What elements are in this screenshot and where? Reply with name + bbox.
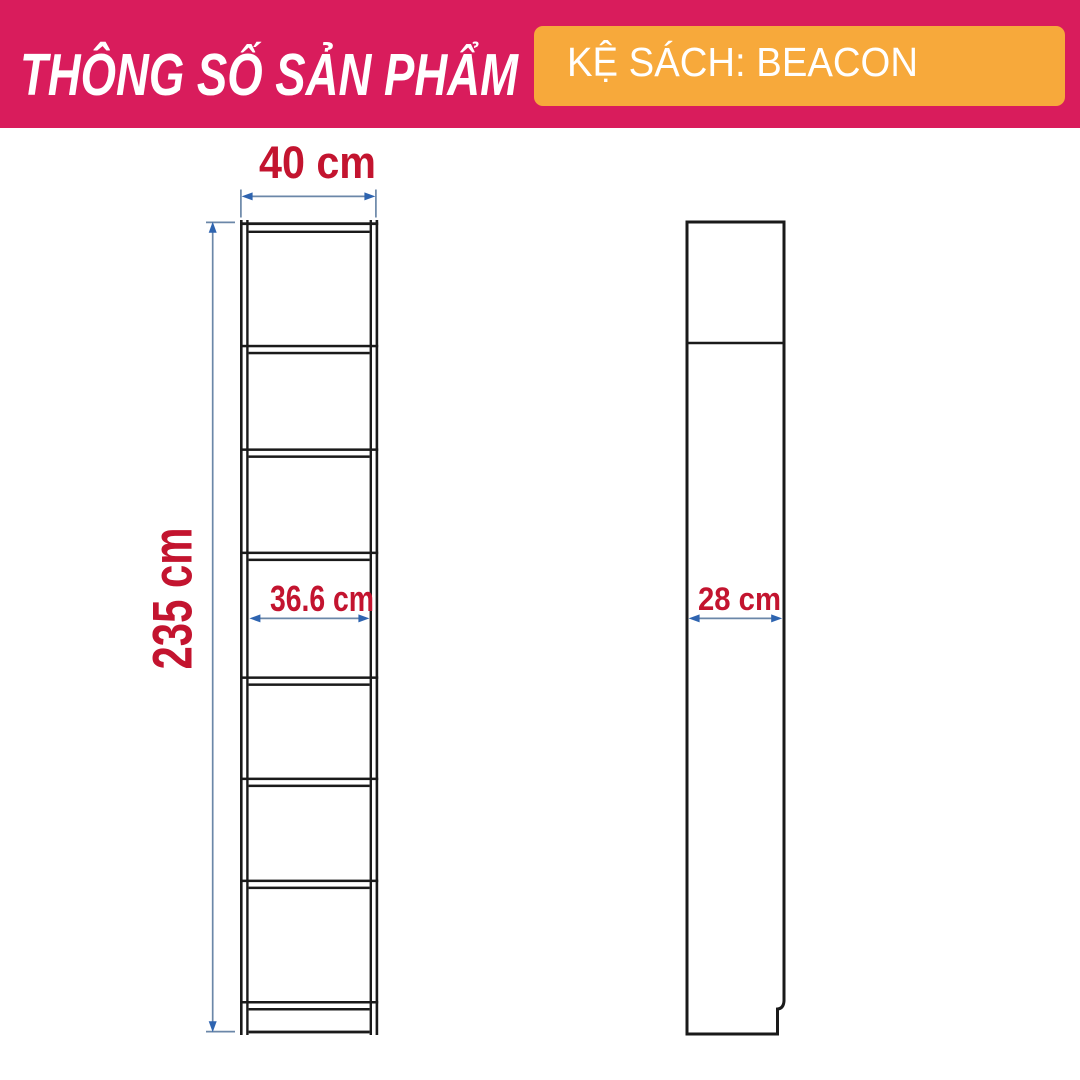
svg-text:28 cm: 28 cm (698, 582, 781, 617)
svg-text:235 cm: 235 cm (142, 528, 204, 670)
svg-text:THÔNG SỐ SẢN PHẨM: THÔNG SỐ SẢN PHẨM (20, 40, 520, 109)
svg-text:40 cm: 40 cm (259, 138, 376, 188)
svg-text:KỆ SÁCH: BEACON: KỆ SÁCH: BEACON (567, 41, 918, 86)
svg-text:36.6 cm: 36.6 cm (270, 578, 374, 619)
